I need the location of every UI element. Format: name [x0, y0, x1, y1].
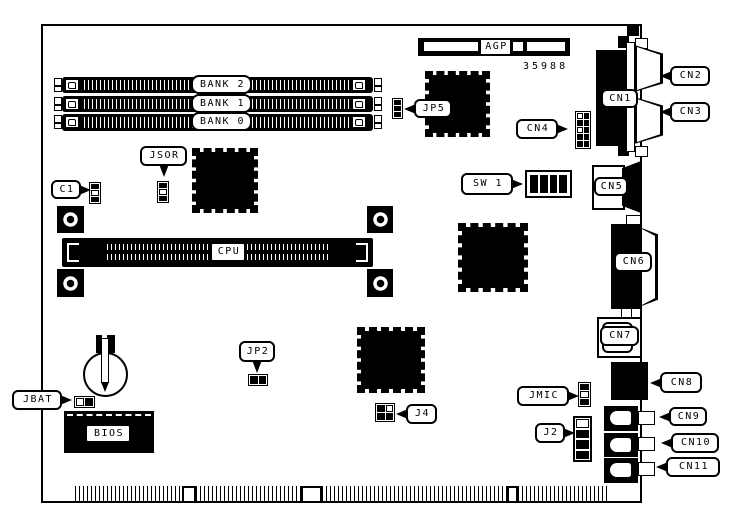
- pin-cell: [584, 113, 590, 119]
- jp5-callout: JP5: [414, 99, 452, 118]
- mount-hole: [373, 212, 388, 227]
- bank0-label: BANK 0: [191, 112, 252, 131]
- pin-cell: [394, 100, 401, 105]
- jbat-callout: JBAT: [12, 390, 62, 410]
- dimm-latch: [352, 98, 366, 110]
- pin-cell: [76, 398, 84, 406]
- pin-cell: [250, 376, 258, 384]
- battery-clip-shaft: [101, 338, 109, 383]
- jsor-callout: JSOR: [140, 146, 187, 166]
- cn9-jack: [604, 406, 638, 431]
- pin-cell: [577, 141, 583, 147]
- cpu-mount-hole: [57, 206, 84, 233]
- cpu-mount-hole: [367, 206, 393, 233]
- jbat-jumper: [74, 396, 95, 408]
- cn3-dsub-connector: [634, 97, 663, 144]
- motherboard-diagram: BANK 2 BANK 1 BANK 0 AGP 35988 CPU CN1 C…: [0, 0, 751, 523]
- cn8-callout: CN8: [660, 372, 702, 393]
- slot-bracket: [67, 243, 79, 262]
- mount-hole: [63, 212, 78, 227]
- sw1-callout: SW 1: [461, 173, 513, 195]
- agp-slot-opening: [424, 42, 478, 51]
- pin-cell: [584, 134, 590, 140]
- cpu-mount-hole: [57, 269, 84, 297]
- pin-cell: [386, 405, 394, 412]
- j4-header: [375, 403, 395, 422]
- jp2-callout: JP2: [239, 341, 275, 362]
- dip-switch-pos: [540, 175, 548, 193]
- bank1-label: BANK 1: [191, 94, 252, 113]
- bracket-tab: [635, 146, 648, 157]
- pin-cell: [584, 120, 590, 126]
- bracket-tab: [627, 25, 639, 36]
- edge-key: [507, 486, 518, 501]
- dimm-latch: [65, 98, 79, 110]
- pin-cell: [580, 391, 589, 397]
- edge-fingers-segment-1: [75, 486, 182, 501]
- edge-fingers-segment-3: [322, 486, 507, 501]
- pin-cell: [577, 134, 583, 140]
- agp-label: AGP: [479, 38, 512, 56]
- jack-opening: [610, 438, 631, 452]
- cn1-label: CN1: [601, 89, 638, 108]
- jp5-jumper: [392, 98, 403, 119]
- ic-chip-center: [458, 223, 528, 292]
- jack-tab: [638, 437, 655, 451]
- pin-cell: [159, 183, 167, 188]
- cn4-callout: CN4: [516, 119, 558, 139]
- cn2-callout: CN2: [670, 66, 710, 86]
- pin-cell: [91, 197, 99, 202]
- dsub-face: [637, 47, 660, 90]
- cn5-label: CN5: [594, 177, 628, 196]
- edge-fingers-segment-4: [518, 486, 608, 501]
- pin-cell: [91, 190, 99, 195]
- pin-cell: [584, 141, 590, 147]
- cn4-header: [575, 111, 591, 149]
- pin-cell: [576, 451, 589, 460]
- dimm-latch: [65, 79, 79, 91]
- agp-slot-key: [513, 42, 523, 51]
- jsor-jumper: [157, 181, 169, 203]
- cpu-mount-hole: [367, 269, 393, 297]
- cn11-callout: CN11: [666, 457, 720, 477]
- dimm-end-tab: [54, 115, 62, 129]
- c1-callout: C1: [51, 180, 81, 199]
- jmic-jumper: [578, 382, 591, 407]
- pin-cell: [394, 106, 401, 111]
- dimm-latch: [352, 116, 366, 128]
- mount-hole: [373, 276, 388, 291]
- pin-cell: [584, 127, 590, 133]
- cn8-connector: [611, 362, 648, 400]
- pin-cell: [580, 399, 589, 405]
- cn10-callout: CN10: [671, 433, 719, 453]
- edge-key: [182, 486, 196, 501]
- pin-cell: [159, 196, 167, 201]
- bank2-label: BANK 2: [191, 75, 252, 94]
- pin-cell: [576, 419, 589, 428]
- slot-bracket: [356, 243, 368, 262]
- pin-cell: [576, 430, 589, 439]
- j2-callout: J2: [535, 423, 565, 443]
- dip-switch-pos: [559, 175, 567, 193]
- pin-cell: [159, 189, 167, 194]
- pin-cell: [377, 413, 385, 420]
- cn7-label: CN7: [600, 326, 639, 346]
- part-number: 35988: [523, 62, 568, 72]
- dimm-end-tab: [374, 115, 382, 129]
- jmic-callout: JMIC: [517, 386, 569, 406]
- sw1-dip-switch: [525, 170, 572, 198]
- dimm-end-tab: [374, 78, 382, 92]
- jack-tab: [638, 462, 655, 476]
- j2-header: [573, 416, 592, 462]
- jack-opening: [610, 463, 631, 477]
- bios-chip-notch: [67, 414, 151, 416]
- bios-label: BIOS: [86, 425, 130, 442]
- edge-key: [301, 486, 322, 501]
- agp-slot-opening: [527, 42, 565, 51]
- dimm-end-tab: [374, 97, 382, 111]
- edge-fingers-segment-2: [196, 486, 301, 501]
- pin-cell: [580, 384, 589, 390]
- cn10-jack: [604, 433, 638, 457]
- dimm-end-tab: [54, 78, 62, 92]
- dimm-end-tab: [54, 97, 62, 111]
- dip-switch-pos: [530, 175, 538, 193]
- pin-cell: [394, 112, 401, 117]
- cn11-jack: [604, 458, 638, 483]
- cn3-callout: CN3: [670, 102, 710, 122]
- pin-cell: [377, 405, 385, 412]
- dimm-latch: [65, 116, 79, 128]
- jack-opening: [610, 411, 631, 425]
- cpu-label: CPU: [211, 243, 245, 261]
- pin-cell: [576, 440, 589, 449]
- pin-cell: [577, 127, 583, 133]
- pin-cell: [91, 184, 99, 189]
- dsub-face: [637, 99, 660, 142]
- mount-hole: [63, 276, 78, 291]
- cn9-callout: CN9: [669, 407, 707, 426]
- dip-switch-pos: [550, 175, 558, 193]
- cn2-dsub-connector: [634, 45, 663, 92]
- ic-chip-south: [357, 327, 425, 393]
- pin-cell: [259, 376, 267, 384]
- jack-tab: [638, 411, 655, 425]
- dimm-latch: [352, 79, 366, 91]
- pin-cell: [386, 413, 394, 420]
- jp2-jumper: [248, 374, 268, 386]
- pin-cell: [577, 113, 583, 119]
- j4-callout: J4: [406, 404, 437, 424]
- pin-cell: [85, 398, 93, 406]
- ic-chip-west: [192, 148, 258, 213]
- cn6-label: CN6: [614, 252, 652, 272]
- pin-cell: [577, 120, 583, 126]
